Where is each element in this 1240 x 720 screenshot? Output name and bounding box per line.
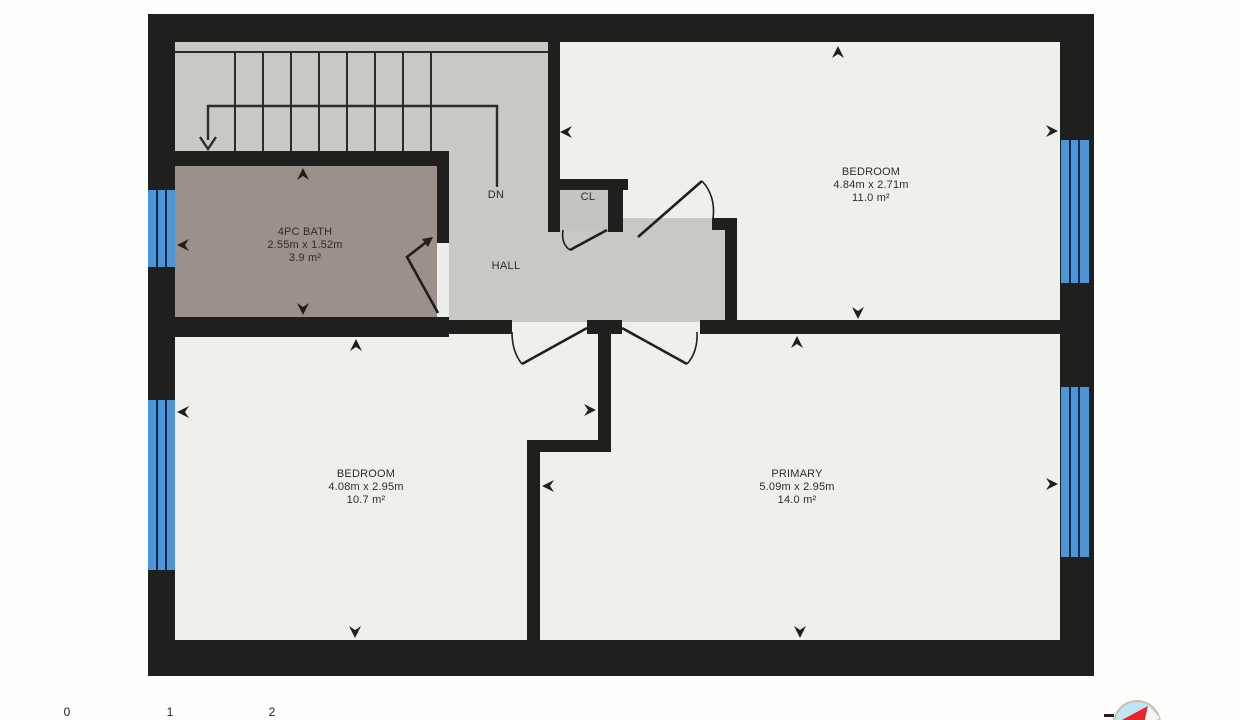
room-name: BEDROOM — [801, 166, 941, 179]
label-bedroom-bottom: BEDROOM 4.08m x 2.95m 10.7 m² — [296, 468, 436, 507]
room-name: BEDROOM — [296, 468, 436, 481]
compass-tick — [1104, 714, 1114, 717]
window-primary — [1061, 387, 1089, 557]
wall-hall-bottom-left — [449, 320, 512, 334]
room-name: 4PC BATH — [235, 226, 375, 239]
compass-icon — [1113, 700, 1161, 720]
wall-bedrooms-divider — [700, 320, 1060, 334]
wall-stairs-bath — [175, 151, 449, 166]
wall-outer-left — [148, 14, 175, 676]
bath-door-opening — [437, 243, 449, 317]
wall-hall-right — [725, 218, 737, 322]
wall-closet-top — [548, 179, 628, 190]
wall-closet-right — [608, 190, 623, 232]
wall-jog-vertical — [527, 440, 540, 640]
scale-tick-1: 1 — [160, 705, 180, 719]
scale-tick-0: 0 — [57, 705, 77, 719]
wall-outer-bottom — [148, 640, 1094, 676]
wall-bath-right — [437, 166, 449, 243]
room-dims: 2.55m x 1.52m — [235, 239, 375, 252]
hall-area — [449, 230, 725, 322]
wall-bottom-center — [598, 320, 611, 452]
room-name: PRIMARY — [727, 468, 867, 481]
window-bedroom-bottom — [148, 400, 175, 570]
label-bath: 4PC BATH 2.55m x 1.52m 3.9 m² — [235, 226, 375, 265]
room-area: 14.0 m² — [727, 494, 867, 507]
label-closet: CL — [568, 191, 608, 203]
room-dims: 5.09m x 2.95m — [727, 481, 867, 494]
label-hall: HALL — [466, 260, 546, 272]
room-area: 3.9 m² — [235, 252, 375, 265]
room-area: 10.7 m² — [296, 494, 436, 507]
window-bath — [148, 190, 175, 267]
room-dims: 4.08m x 2.95m — [296, 481, 436, 494]
wall-outer-top — [148, 14, 1094, 42]
floor-plan: BEDROOM 4.84m x 2.71m 11.0 m² 4PC BATH 2… — [0, 0, 1240, 720]
label-primary: PRIMARY 5.09m x 2.95m 14.0 m² — [727, 468, 867, 507]
hall-door-opening — [623, 218, 725, 230]
wall-bath-bottom — [175, 317, 449, 337]
room-area: 11.0 m² — [801, 192, 941, 205]
stairs-area — [175, 42, 548, 151]
wall-bedroom-left — [548, 42, 560, 232]
label-stairs-dn: DN — [476, 189, 516, 201]
label-bedroom-top: BEDROOM 4.84m x 2.71m 11.0 m² — [801, 166, 941, 205]
wall-outer-right — [1060, 14, 1094, 676]
scale-tick-2: 2 — [262, 705, 282, 719]
window-bedroom-top — [1061, 140, 1089, 283]
room-dims: 4.84m x 2.71m — [801, 179, 941, 192]
compass-needle-red — [1120, 706, 1148, 720]
